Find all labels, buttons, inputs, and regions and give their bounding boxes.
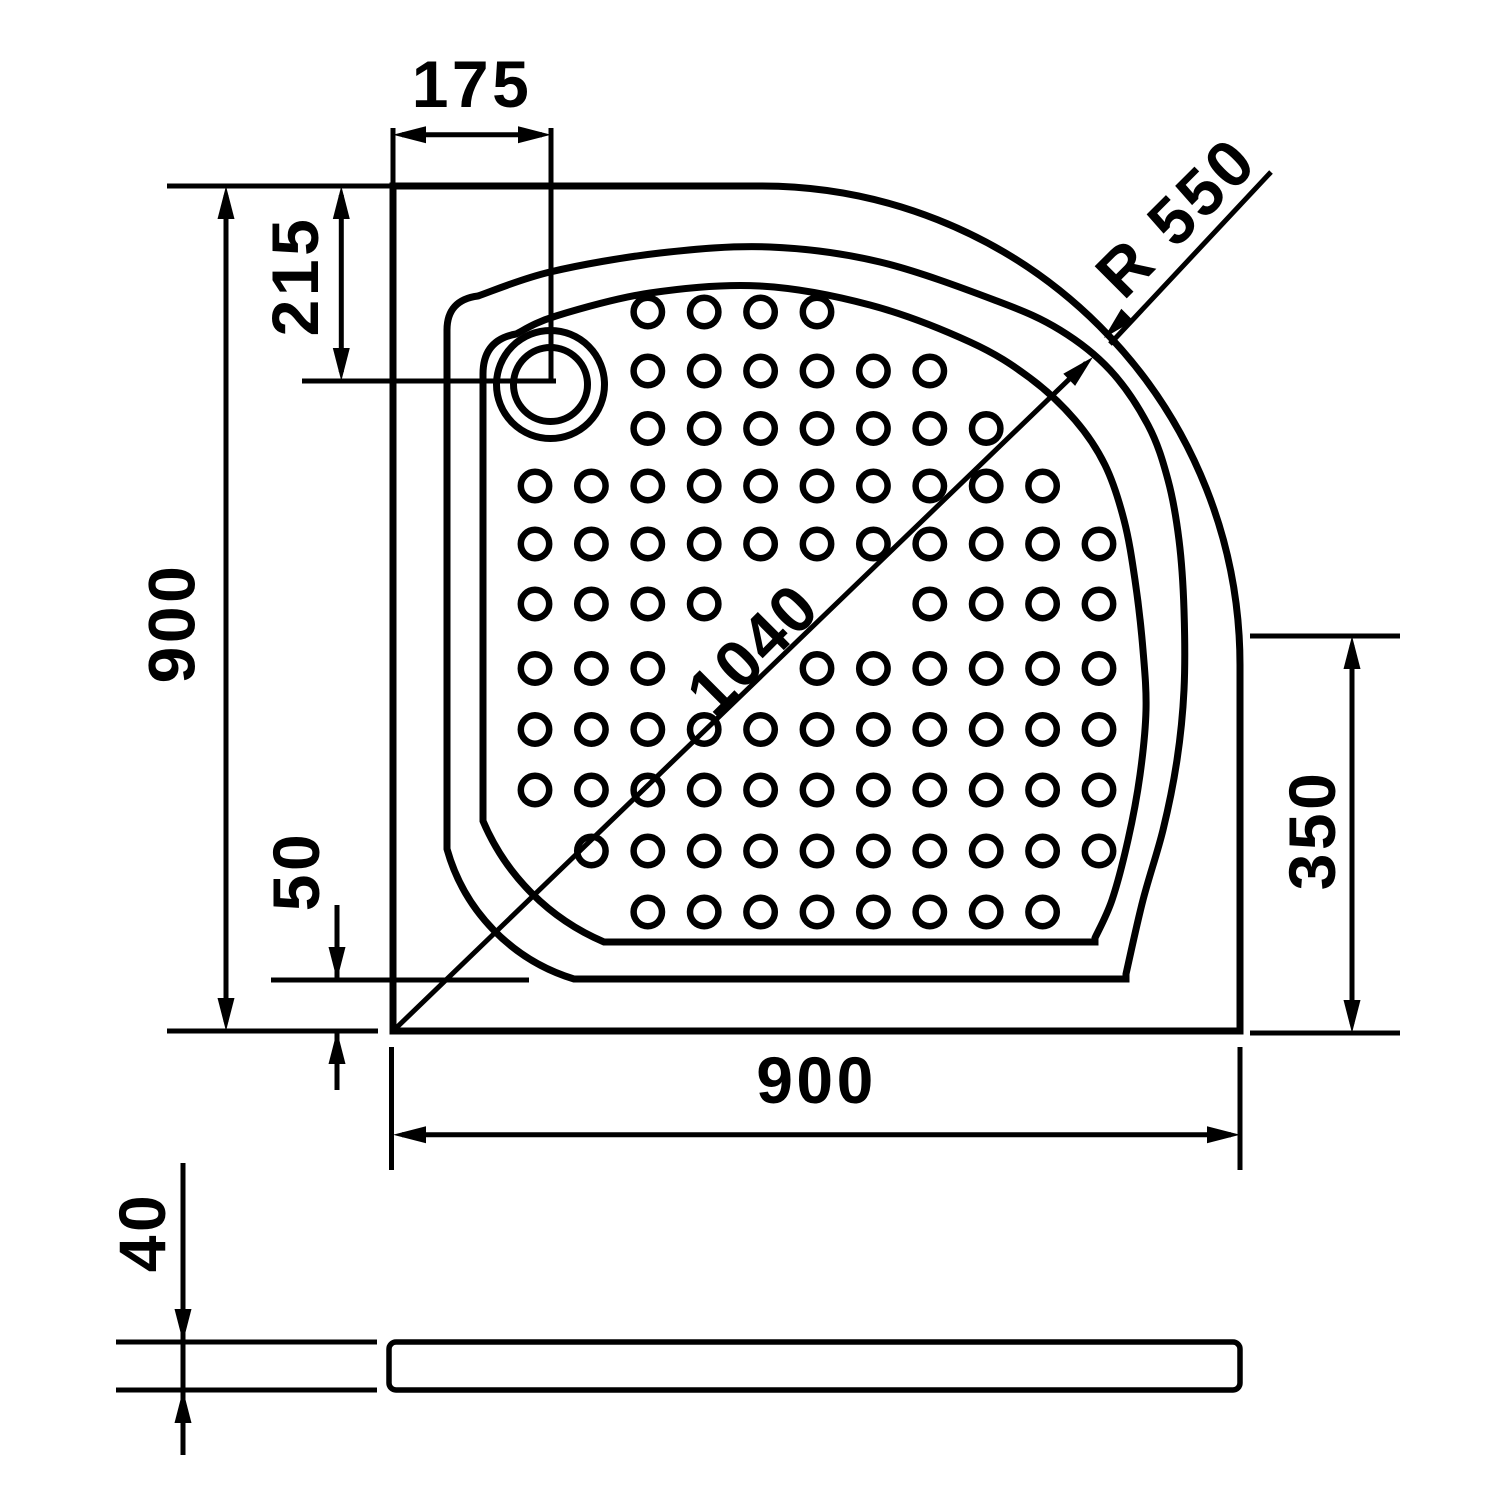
svg-text:40: 40	[105, 1192, 179, 1272]
svg-text:215: 215	[258, 216, 332, 337]
svg-text:50: 50	[259, 831, 333, 911]
svg-text:900: 900	[756, 1043, 877, 1117]
svg-text:900: 900	[135, 563, 209, 684]
svg-text:175: 175	[412, 47, 533, 121]
svg-text:350: 350	[1275, 770, 1349, 891]
